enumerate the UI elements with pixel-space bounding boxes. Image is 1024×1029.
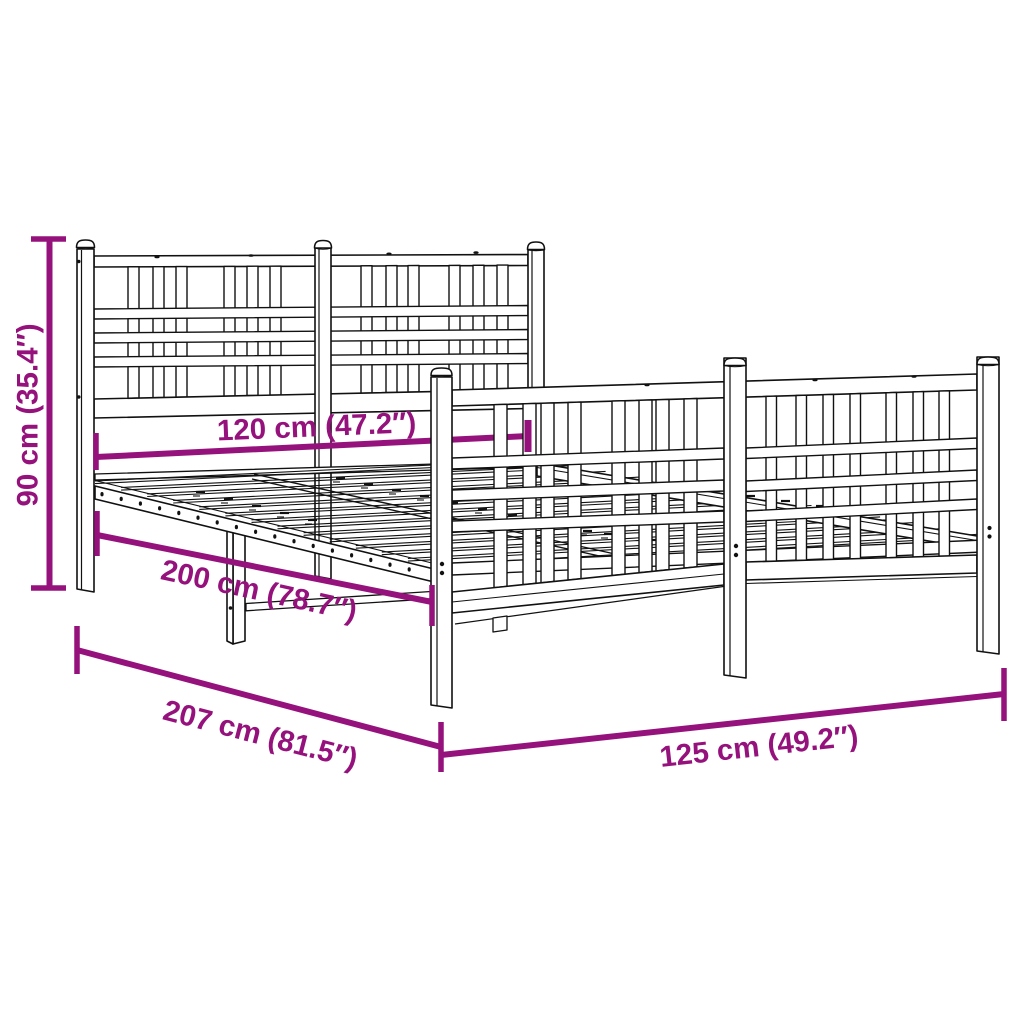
svg-text:90 cm (35.4″): 90 cm (35.4″) bbox=[12, 323, 45, 506]
